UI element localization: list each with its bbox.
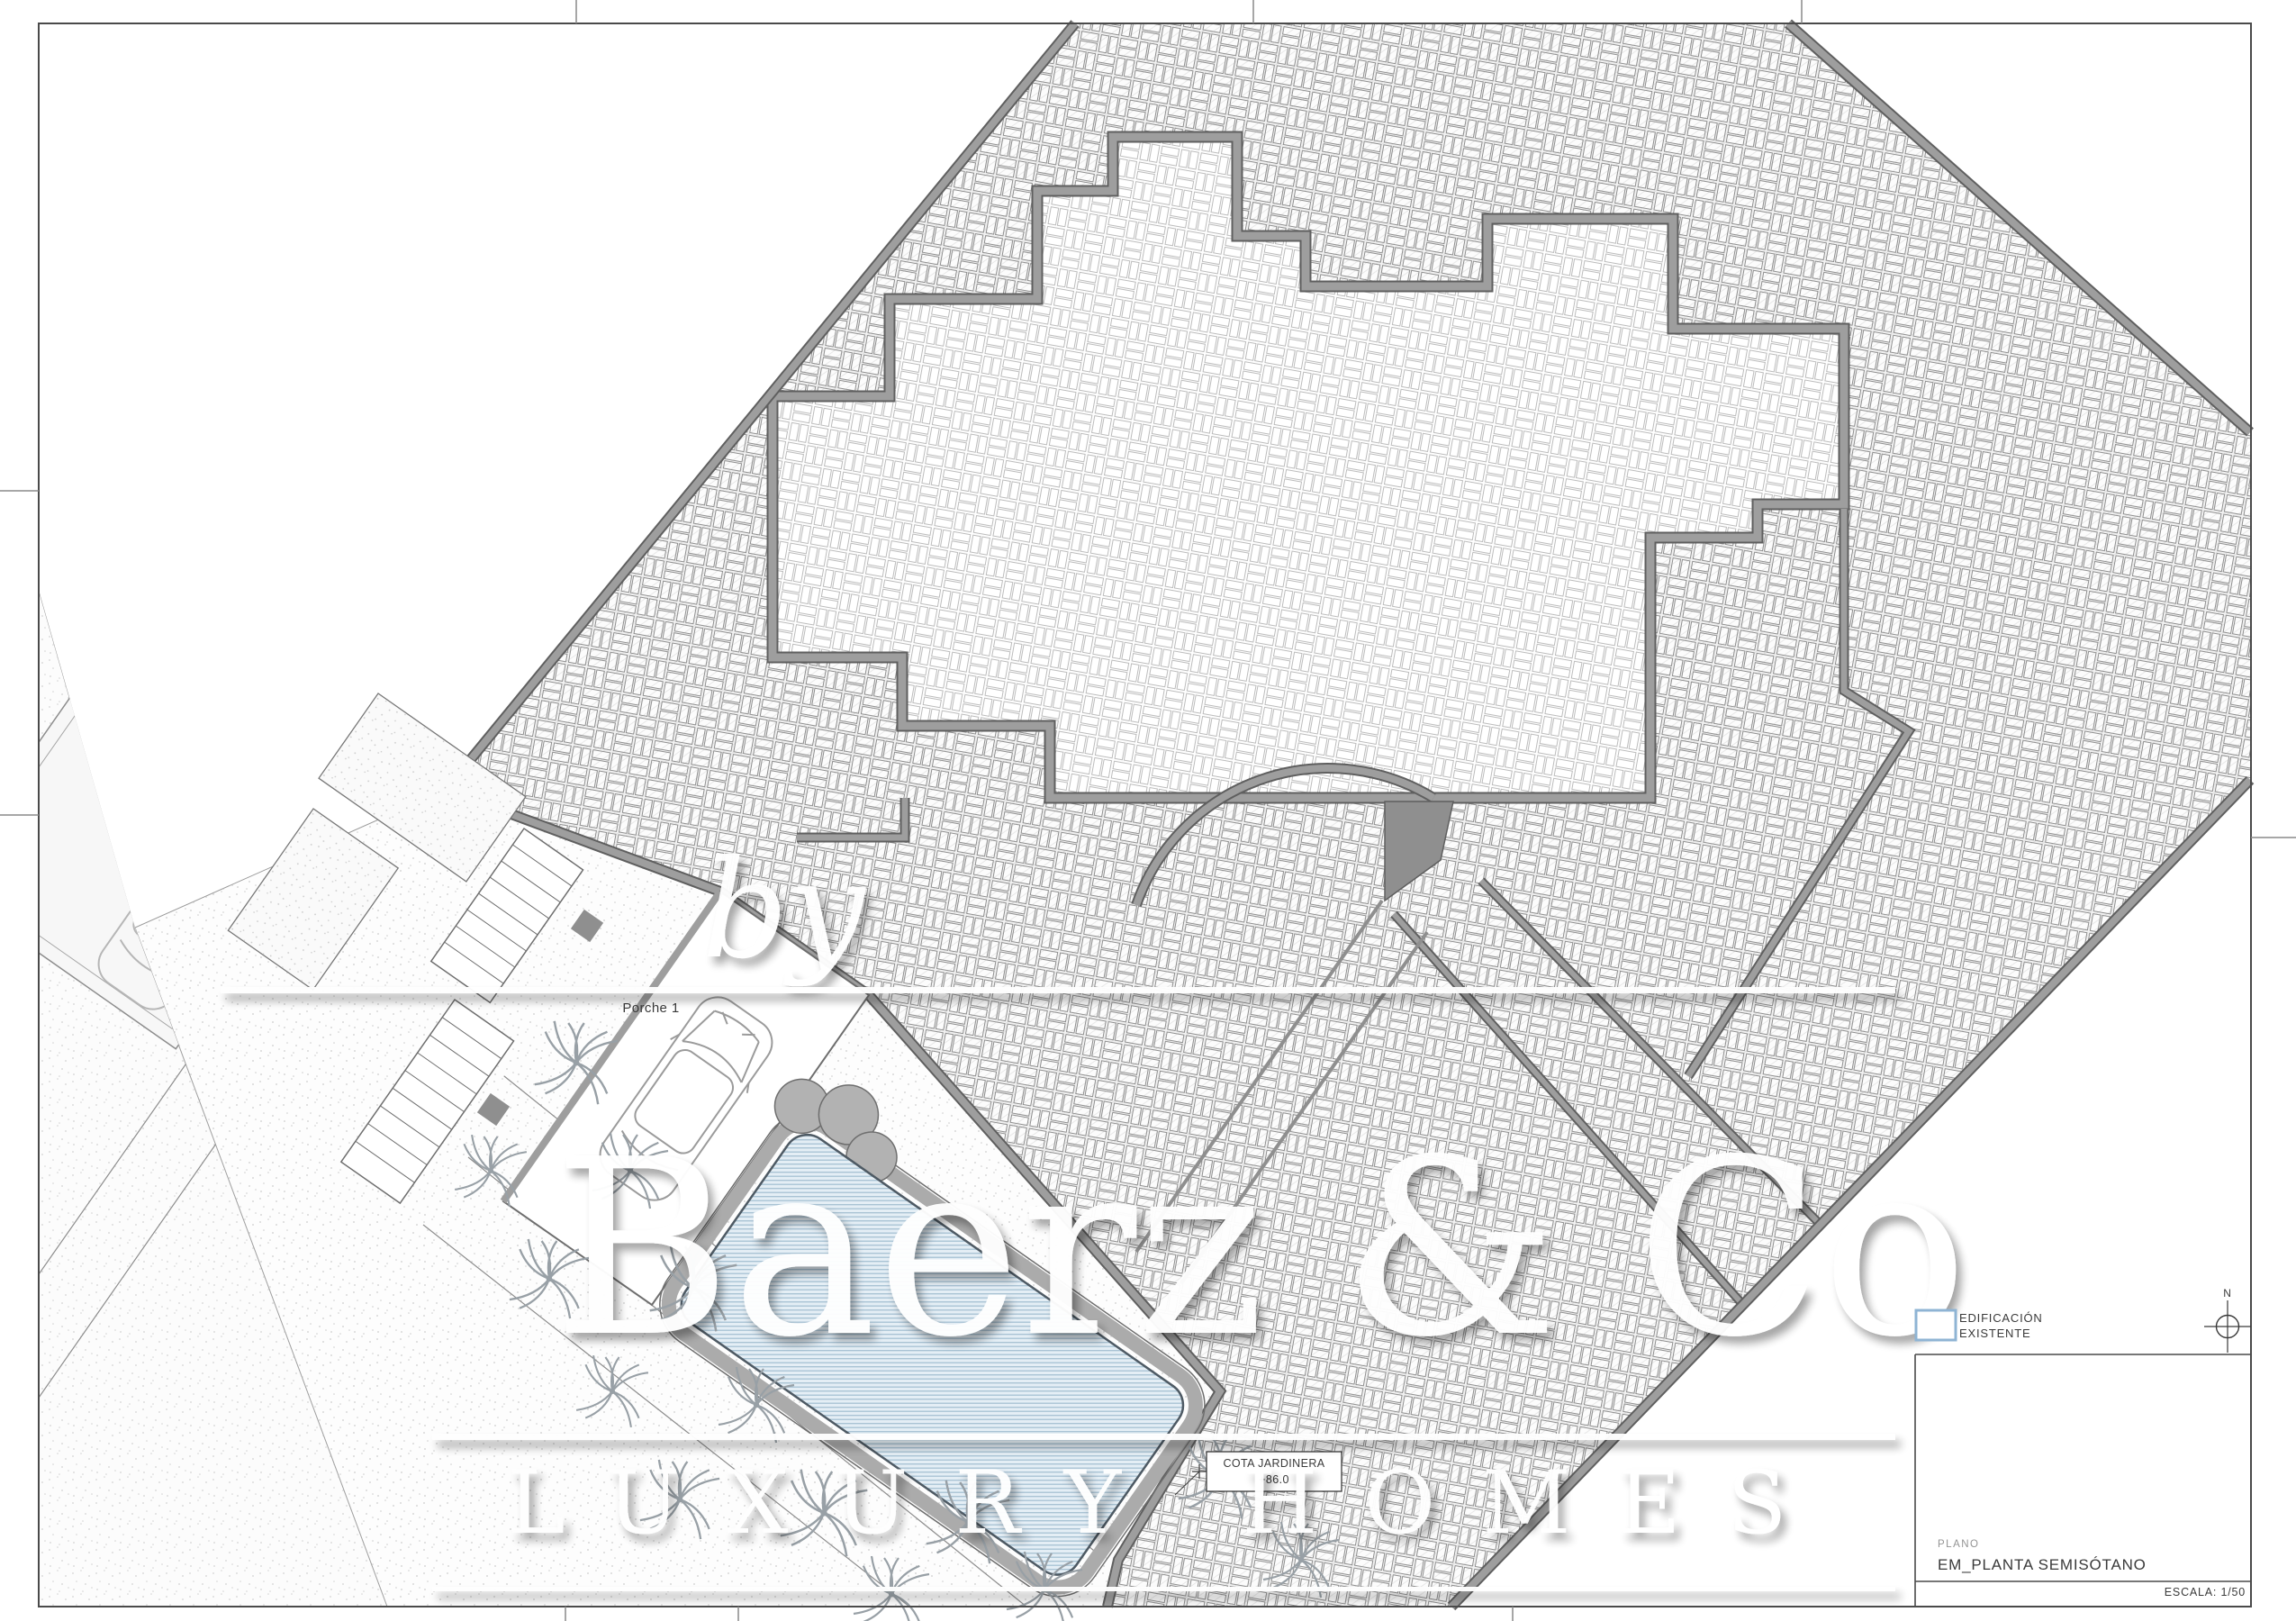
site-plan-svg: Porche 1 (0, 0, 2296, 1621)
drawing-sheet: Porche 1 (0, 0, 2296, 1621)
watermark-rule-bottom (432, 1434, 1895, 1440)
watermark-by: by (702, 832, 867, 989)
north-label: N (2223, 1287, 2231, 1300)
watermark-tagline: LUXURY HOMES (508, 1453, 1833, 1553)
legend-line2: EXISTENTE (1959, 1327, 2030, 1340)
legend-swatch (1916, 1310, 1956, 1340)
porch-label: Porche 1 (622, 1001, 679, 1016)
title-block-field-label: PLANO (1938, 1539, 1980, 1550)
watermark-brand: Baerz & Co (553, 1107, 1968, 1390)
title-block: PLANO EM_PLANTA SEMISÓTANO ESCALA: 1/50 (1915, 1354, 2251, 1607)
watermark-rule-top (221, 987, 1895, 993)
legend-line1: EDIFICACIÓN (1959, 1311, 2043, 1325)
title-block-drawing-title: EM_PLANTA SEMISÓTANO (1938, 1556, 2147, 1573)
title-block-scale: ESCALA: 1/50 (2165, 1586, 2246, 1598)
legend: EDIFICACIÓN EXISTENTE (1916, 1310, 2043, 1340)
watermark-rule-under (432, 1587, 1895, 1591)
north-arrow: N (2204, 1287, 2251, 1353)
